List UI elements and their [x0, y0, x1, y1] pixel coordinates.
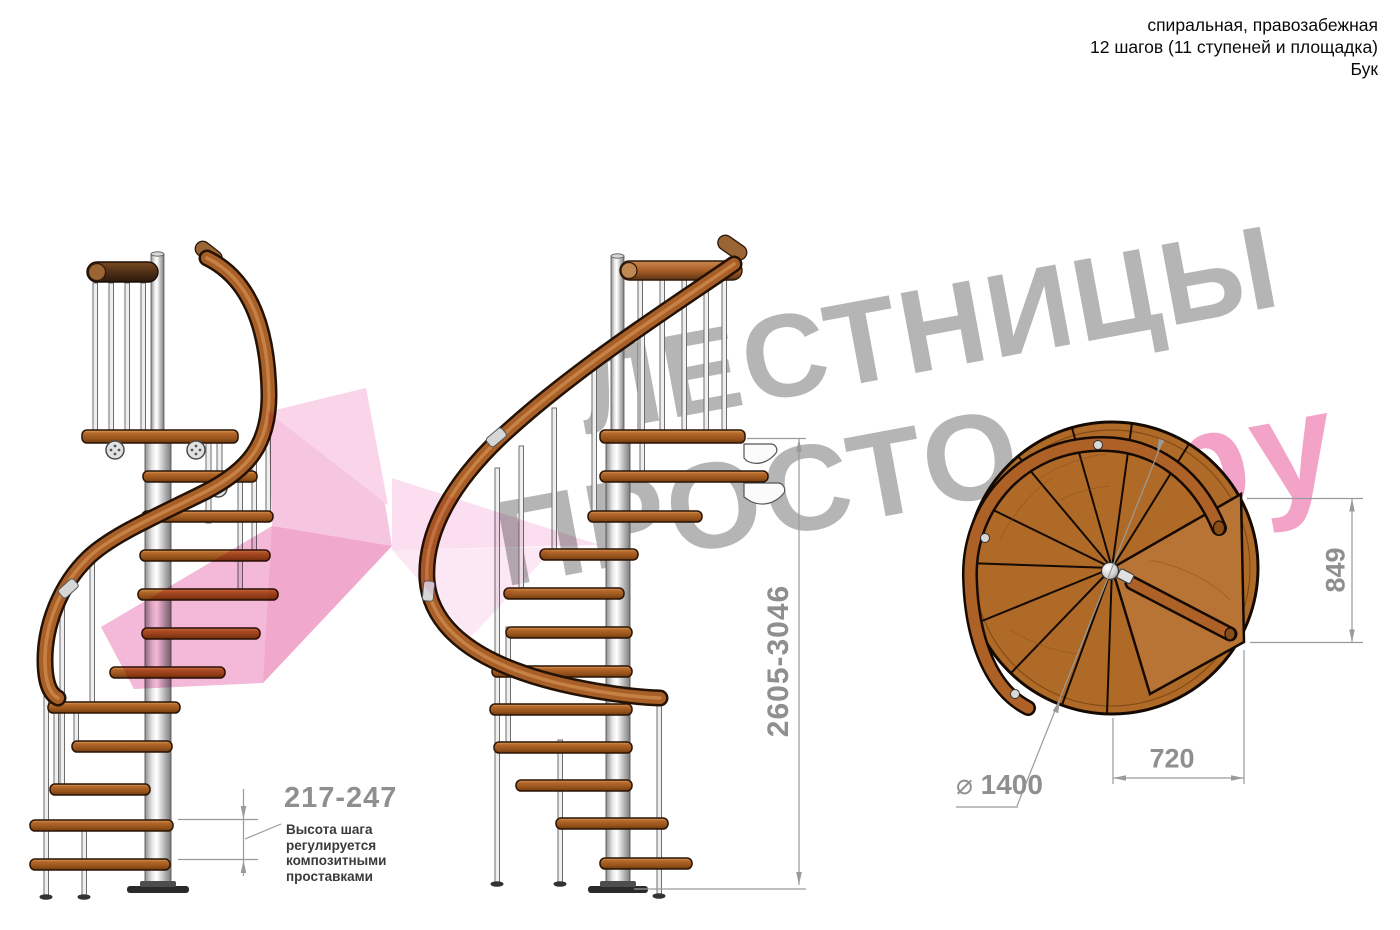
step [600, 858, 692, 869]
note-line: проставками [286, 869, 386, 885]
step [516, 780, 632, 791]
baluster-feet [40, 894, 91, 900]
landing-step [82, 430, 238, 443]
handrail-connector [422, 581, 435, 602]
note-line: Высота шага [286, 822, 386, 838]
title-type: спиральная, правозабежная [1090, 14, 1378, 36]
step [72, 741, 172, 752]
note-line: регулируется [286, 838, 386, 854]
title-steps: 12 шагов (11 ступеней и площадка) [1090, 36, 1378, 58]
dim-step-height: 217-247 [284, 784, 397, 813]
landing-step [600, 430, 745, 443]
title-block: спиральная, правозабежная 12 шагов (11 с… [1090, 14, 1378, 80]
dim-plan-depth: 849 [1323, 547, 1350, 592]
side-view-back [422, 232, 785, 899]
step [600, 471, 768, 482]
step [140, 550, 270, 561]
pole-base-flange [127, 886, 189, 893]
title-material: Бук [1090, 58, 1378, 80]
step [142, 628, 260, 639]
step [50, 784, 150, 795]
step [588, 511, 702, 522]
step-height-note: Высота шага регулируется композитными пр… [286, 822, 386, 884]
dim-plan-width: 720 [1149, 746, 1194, 773]
step [490, 704, 632, 715]
dim-diameter: ⌀ 1400 [956, 771, 1043, 799]
step [494, 742, 632, 753]
center-pole [127, 252, 189, 893]
diameter-icon: ⌀ [956, 768, 973, 801]
step [110, 667, 225, 678]
landing-handrail [87, 262, 158, 282]
step [556, 818, 668, 829]
step [48, 702, 180, 713]
step [138, 589, 278, 600]
diameter-value: 1400 [981, 769, 1043, 800]
note-line: композитными [286, 853, 386, 869]
step [30, 859, 170, 870]
step [30, 820, 173, 831]
step [506, 627, 632, 638]
side-view-front [30, 238, 278, 900]
step [540, 549, 638, 560]
dim-total-height: 2605-3046 [764, 585, 794, 737]
step [504, 588, 624, 599]
drawing-sheet: ЛЕСТНИЦЫ ПРОСТО ру [0, 0, 1400, 930]
staircase-drawing [0, 0, 1400, 930]
